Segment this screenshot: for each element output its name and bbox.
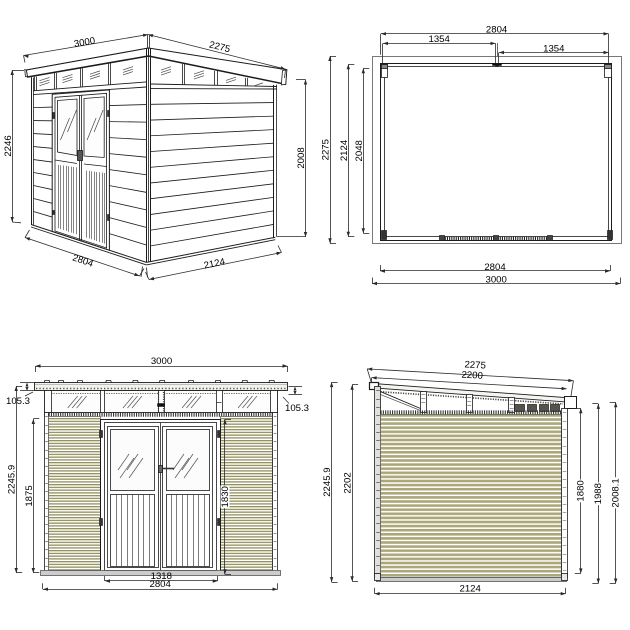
svg-text:1875: 1875 [24,485,35,506]
svg-text:2124: 2124 [339,139,350,161]
svg-text:2804: 2804 [484,262,506,273]
svg-text:2048: 2048 [354,140,365,161]
svg-text:105.3: 105.3 [285,403,309,414]
svg-text:2804: 2804 [486,25,508,36]
svg-text:2008.1: 2008.1 [611,478,622,507]
svg-text:2202: 2202 [343,472,354,493]
svg-text:2245.9: 2245.9 [322,467,333,496]
svg-text:1354: 1354 [543,43,565,54]
svg-text:2246: 2246 [3,135,14,156]
svg-text:2245.9: 2245.9 [7,465,18,494]
svg-text:1988: 1988 [593,483,604,504]
svg-text:1354: 1354 [429,34,451,45]
svg-text:3000: 3000 [151,356,172,367]
svg-text:2804: 2804 [150,579,172,590]
svg-text:1880: 1880 [576,480,587,501]
svg-text:2008: 2008 [296,147,307,168]
svg-text:2275: 2275 [321,139,332,160]
svg-text:2124: 2124 [460,584,482,595]
svg-text:105.3: 105.3 [6,396,30,407]
svg-text:2200: 2200 [461,370,483,382]
svg-text:1830: 1830 [220,486,231,507]
svg-text:3000: 3000 [486,275,507,286]
